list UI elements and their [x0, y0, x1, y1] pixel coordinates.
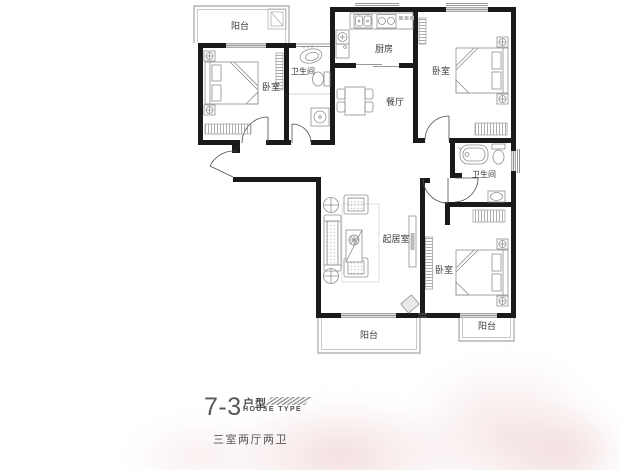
- room-label-bathroom-top-left: 卫生间: [291, 66, 315, 76]
- room-label-dining-room: 餐厅: [386, 96, 404, 108]
- bed-top-right: [456, 48, 508, 93]
- radiator: [205, 124, 251, 134]
- room-label-bathroom-right: 卫生间: [472, 169, 496, 179]
- room-label-kitchen: 厨房: [375, 43, 393, 55]
- bedroom-top-right-door: [425, 116, 449, 140]
- radiator: [475, 123, 507, 135]
- radiator: [473, 210, 505, 222]
- floor-plan-drawing: 阳台 卧室 卫生间 厨房 餐厅 卧室 卫生间 起居室 卧室 阳台 阳台: [0, 0, 620, 470]
- unit-spec: 三室两厅两卫: [213, 431, 288, 447]
- bathroom-top-left-fixtures: [289, 45, 330, 126]
- room-label-living-room: 起居室: [382, 233, 409, 245]
- bed-top-left: [205, 62, 258, 104]
- hatch-decoration: [265, 397, 311, 405]
- living-room-furniture: [324, 195, 420, 313]
- bathroom-right-door: [455, 178, 478, 202]
- furniture: [204, 13, 508, 313]
- room-label-balcony-bottom-center: 阳台: [360, 329, 378, 341]
- room-label-bedroom-top-left: 卧室: [262, 81, 280, 93]
- floorplan-page: 阳台 卧室 卫生间 厨房 餐厅 卧室 卫生间 起居室 卧室 阳台 阳台 7-3 …: [0, 0, 620, 470]
- room-label-balcony-top-left: 阳台: [231, 20, 249, 32]
- unit-type-label-en: HOUSE TYPE: [243, 406, 302, 413]
- room-label-bedroom-top-right: 卧室: [432, 65, 450, 77]
- balcony-storage-box: [268, 9, 286, 29]
- dining-set: [337, 87, 373, 115]
- entry-door: [210, 151, 237, 177]
- room-label-balcony-bottom-right: 阳台: [478, 320, 496, 332]
- room-label-bedroom-bottom-right: 卧室: [435, 264, 453, 276]
- unit-number: 7-3: [204, 393, 242, 422]
- bed-bottom-right: [456, 250, 508, 295]
- bathroom-top-left-door: [292, 124, 311, 143]
- wardrobe: [426, 237, 433, 289]
- wardrobe: [419, 18, 426, 44]
